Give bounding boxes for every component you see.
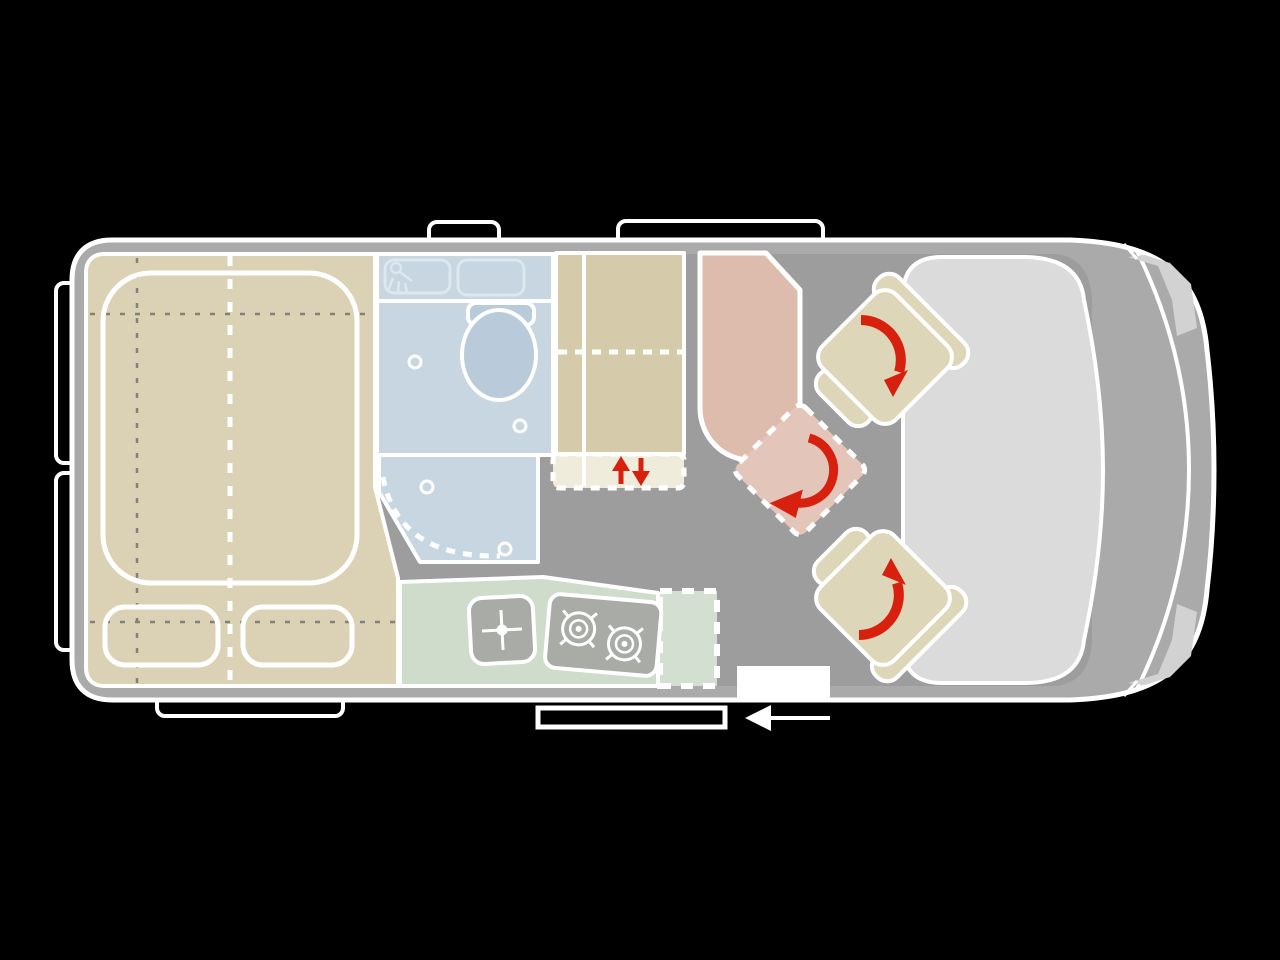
kitchen-area — [400, 577, 717, 686]
toilet-icon — [462, 303, 536, 400]
worktop-extension-flap — [660, 591, 717, 686]
wardrobe-area — [553, 253, 684, 488]
bathroom-area — [377, 254, 553, 562]
stove — [544, 593, 662, 676]
floorplan-stage — [0, 0, 1280, 960]
entry-step — [737, 666, 830, 700]
floorplan-canvas — [0, 0, 1280, 960]
rear-bed-area — [86, 254, 398, 686]
sink — [468, 595, 535, 664]
